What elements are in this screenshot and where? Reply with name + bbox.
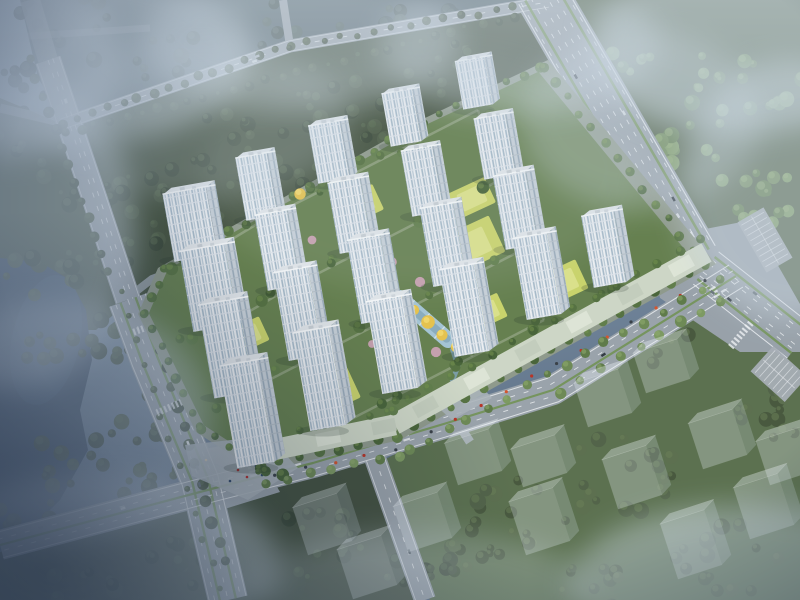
- fx-layer: [0, 0, 800, 600]
- aerial-rendering: [0, 0, 800, 600]
- screenshot-root: [0, 0, 800, 600]
- scene-canvas: [0, 0, 800, 600]
- illustration-layers: [0, 0, 800, 600]
